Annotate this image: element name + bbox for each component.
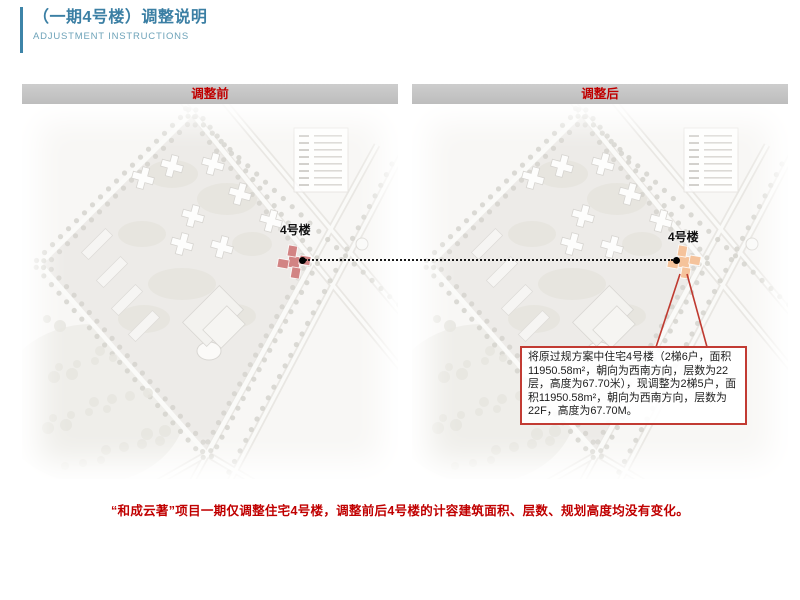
page-title: （一期4号楼）调整说明 <box>33 8 207 28</box>
marker-dot-before <box>299 257 306 264</box>
panel-before: 调整前 <box>22 84 398 479</box>
title-block: （一期4号楼）调整说明 ADJUSTMENT INSTRUCTIONS <box>33 8 207 42</box>
slide: （一期4号楼）调整说明 ADJUSTMENT INSTRUCTIONS 调整前 … <box>0 0 800 600</box>
building-label-after: 4号楼 <box>668 228 699 245</box>
footer-note: “和成云著”项目一期仅调整住宅4号楼，调整前后4号楼的计容建筑面积、层数、规划高… <box>0 500 800 519</box>
title-accent-bar <box>20 7 23 53</box>
marker-dot-after <box>673 257 680 264</box>
site-plan-before-svg <box>22 104 398 479</box>
page-subtitle: ADJUSTMENT INSTRUCTIONS <box>33 31 207 42</box>
site-plan-before <box>22 104 398 479</box>
adjustment-callout: 将原过规方案中住宅4号楼（2梯6户，面积11950.58m²，朝向为西南方向，层… <box>520 346 747 425</box>
panel-before-header: 调整前 <box>22 84 398 104</box>
panel-after-header: 调整后 <box>412 84 788 104</box>
building-label-before: 4号楼 <box>280 221 311 238</box>
